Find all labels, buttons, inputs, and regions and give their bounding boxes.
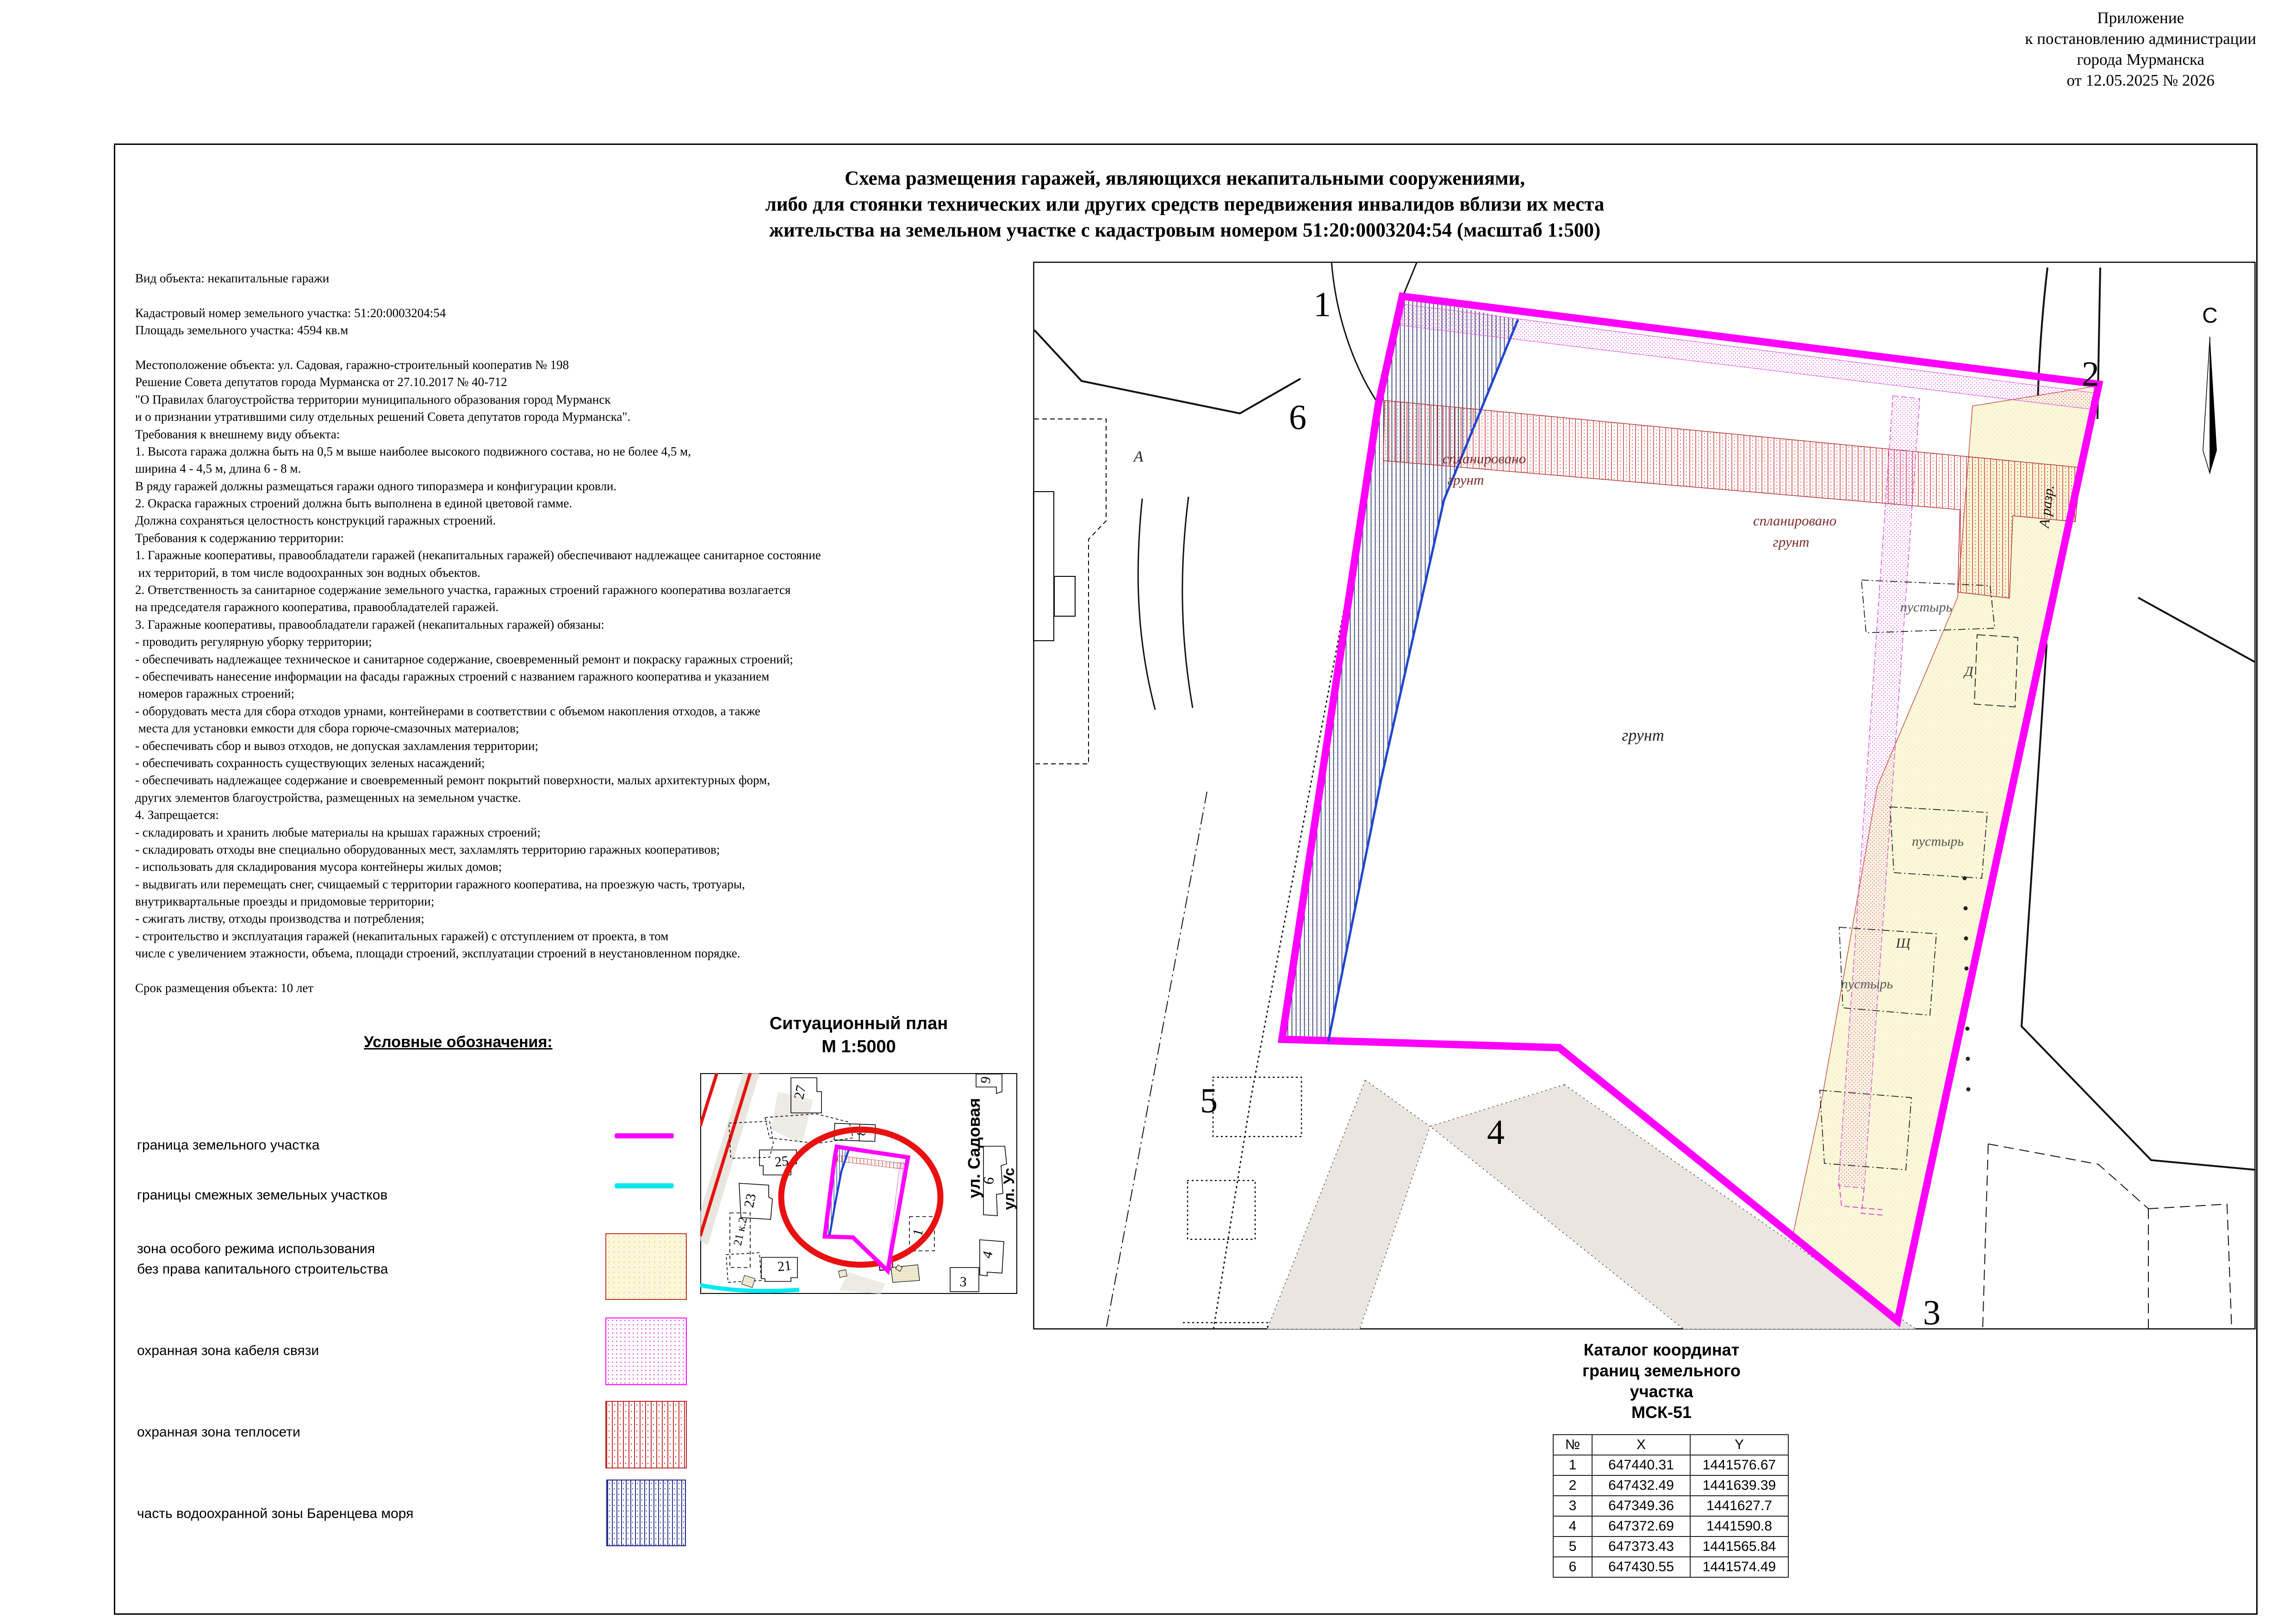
cell-n: 4: [1553, 1516, 1592, 1537]
point-label-6: 6: [1289, 398, 1307, 437]
info-line: 4. Запрещается:: [135, 808, 821, 825]
col-header-x: X: [1592, 1435, 1690, 1455]
cell-x: 647373.43: [1592, 1537, 1690, 1557]
cell-n: 3: [1553, 1496, 1592, 1516]
cell-n: 6: [1553, 1557, 1592, 1577]
title-line: либо для стоянки технических или других …: [116, 192, 2254, 218]
annex-line: от 12.05.2025 № 2026: [2025, 70, 2256, 91]
info-line: 1. Гаражные кооперативы, правообладатели…: [135, 548, 821, 565]
page-title: Схема размещения гаражей, являющихся нек…: [116, 166, 2254, 244]
info-line: - обеспечивать нанесение информации на ф…: [135, 669, 821, 687]
info-line: - обеспечивать надлежащее техническое и …: [135, 652, 821, 669]
info-line: Вид объекта: некапитальные гаражи: [135, 271, 821, 288]
cell-y: 1441639.39: [1690, 1475, 1788, 1496]
info-line: - сжигать листву, отходы производства и …: [135, 912, 821, 929]
info-line: номеров гаражных строений;: [135, 687, 821, 704]
cell-n: 2: [1553, 1475, 1592, 1496]
cell-x: 647430.55: [1592, 1557, 1690, 1577]
info-line: - проводить регулярную уборку территории…: [135, 635, 821, 652]
title-line: Схема размещения гаражей, являющихся нек…: [116, 166, 2254, 192]
legend-swatch-water-zone: [606, 1480, 686, 1546]
situational-plan-scale: М 1:5000: [700, 1035, 1017, 1058]
info-line: - складировать и хранить любые материалы…: [135, 825, 821, 843]
cell-y: 1441576.67: [1690, 1455, 1788, 1475]
cell-y: 1441627.7: [1690, 1496, 1788, 1516]
situational-plan-title-line: Ситуационный план: [700, 1012, 1017, 1035]
info-line: [135, 288, 821, 306]
legend-heading: Условные обозначения:: [338, 1033, 579, 1051]
info-line: - обеспечивать надлежащее содержание и с…: [135, 773, 821, 790]
cell-x: 647349.36: [1592, 1496, 1690, 1516]
north-label: С: [2202, 303, 2217, 327]
info-line: на председателя гаражного кооператива, п…: [135, 600, 821, 617]
cell-y: 1441574.49: [1690, 1557, 1788, 1577]
plan-street-us: ул. Ус: [1001, 1168, 1017, 1210]
annex-line: города Мурманска: [2025, 49, 2256, 70]
point-label-3: 3: [1923, 1293, 1941, 1330]
cell-n: 5: [1553, 1537, 1592, 1557]
info-line: 2. Ответственность за санитарное содержа…: [135, 583, 821, 600]
cell-x: 647440.31: [1592, 1455, 1690, 1475]
point-label-2: 2: [2082, 355, 2099, 394]
info-line: - строительство и эксплуатация гаражей (…: [135, 929, 821, 946]
info-line: их территорий, в том числе водоохранных …: [135, 566, 821, 583]
title-line: жительства на земельном участке с кадаст…: [116, 218, 2254, 244]
legend-swatch-adjacent: [615, 1183, 674, 1188]
legend-item-boundary: граница земельного участка: [137, 1135, 319, 1156]
info-line: других элементов благоустройства, размещ…: [135, 791, 821, 808]
info-line: [135, 964, 821, 981]
table-row: 1 647440.31 1441576.67: [1553, 1455, 1788, 1475]
point-label-1: 1: [1313, 285, 1331, 324]
legend-item-heat-zone: охранная зона теплосети: [137, 1422, 300, 1443]
col-header-n: №: [1553, 1435, 1592, 1455]
point-label-4: 4: [1487, 1113, 1505, 1152]
label-splanirovano-1-grunt: грунт: [1448, 472, 1484, 488]
coords-title-line: Каталог координат: [1546, 1339, 1777, 1360]
info-line: - обеспечивать сбор и вывоз отходов, не …: [135, 739, 821, 756]
legend-swatch-heat-zone: [605, 1401, 687, 1468]
main-map: 1 2 3 4 5 6 С А А разр. грунт спланирова…: [1033, 262, 2256, 1330]
cell-x: 647432.49: [1592, 1475, 1690, 1496]
info-line: - использовать для складирования мусора …: [135, 860, 821, 877]
info-line: Требования к содержанию территории:: [135, 531, 821, 548]
plan-street-sadovaya: ул. Садовая: [964, 1098, 983, 1198]
label-splanirovano-1: спланировано: [1443, 450, 1526, 467]
info-line: 1. Высота гаража должна быть на 0,5 м вы…: [135, 444, 821, 462]
plan-num-3: 3: [959, 1274, 967, 1290]
info-line: внутриквартальные проезды и придомовые т…: [135, 894, 821, 912]
info-line: и о признании утратившими силу отдельных…: [135, 410, 821, 427]
label-splanirovano-2-grunt: грунт: [1773, 534, 1810, 550]
label-pustyr-1: пустырь: [1900, 600, 1952, 615]
info-line: Срок размещения объекта: 10 лет: [135, 981, 821, 998]
cell-n: 1: [1553, 1455, 1592, 1475]
info-line: Решение Совета депутатов города Мурманск…: [135, 375, 821, 392]
annex-line: к постановлению администрации: [2025, 28, 2256, 49]
annex-line: Приложение: [2025, 7, 2256, 28]
info-line: [135, 341, 821, 358]
info-line: ширина 4 - 4,5 м, длина 6 - 8 м.: [135, 462, 821, 479]
label-a: А: [1133, 448, 1144, 465]
situational-plan-map: 27 25 23 21 к.2 21 8 9 6 1 3 4 ул. Садов…: [700, 1073, 1017, 1294]
legend-item-water-zone: часть водоохранной зоны Баренцева моря: [137, 1504, 413, 1524]
coords-title-line: МСК-51: [1546, 1402, 1777, 1423]
annex-block: Приложение к постановлению администрации…: [2025, 7, 2256, 91]
label-pustyr-2: пустырь: [1912, 834, 1964, 849]
info-line: Должна сохраняться целостность конструкц…: [135, 513, 821, 531]
legend-item-cable-zone: охранная зона кабеля связи: [137, 1341, 319, 1361]
info-line: 3. Гаражные кооперативы, правообладатели…: [135, 618, 821, 635]
situational-plan-title: Ситуационный план М 1:5000: [700, 1012, 1017, 1058]
document-page: Приложение к постановлению администрации…: [0, 0, 2296, 1624]
info-line: - обеспечивать сохранность существующих …: [135, 756, 821, 773]
legend-swatch-boundary: [615, 1133, 674, 1138]
table-row: 6 647430.55 1441574.49: [1553, 1557, 1788, 1577]
coords-title-line: участка: [1546, 1381, 1777, 1402]
plan-num-21: 21: [777, 1258, 792, 1274]
cell-y: 1441590.8: [1690, 1516, 1788, 1537]
legend-swatch-special-zone: [605, 1233, 687, 1300]
label-splanirovano-2: спланировано: [1753, 512, 1836, 529]
table-header-row: № X Y: [1553, 1435, 1788, 1455]
legend-item-special-zone: зона особого режима использования: [137, 1239, 375, 1259]
info-line: числе с увеличением этажности, объема, п…: [135, 946, 821, 963]
info-line: - выдвигать или перемещать снег, счищаем…: [135, 877, 821, 894]
info-line: Требования к внешнему виду объекта:: [135, 427, 821, 444]
legend-swatch-cable-zone: [605, 1318, 687, 1385]
table-row: 4 647372.69 1441590.8: [1553, 1516, 1788, 1537]
cell-y: 1441565.84: [1690, 1537, 1788, 1557]
coords-table: № X Y 1 647440.31 1441576.67 2 647432.49…: [1553, 1434, 1789, 1578]
legend-item-adjacent: границы смежных земельных участков: [137, 1185, 387, 1206]
info-line: - оборудовать места для сбора отходов ур…: [135, 704, 821, 721]
label-d: Д: [1963, 664, 1974, 679]
label-shch: Щ: [1895, 936, 1911, 951]
info-line: Площадь земельного участка: 4594 кв.м: [135, 323, 821, 340]
info-line: - складировать отходы вне специально обо…: [135, 843, 821, 860]
table-row: 2 647432.49 1441639.39: [1553, 1475, 1788, 1496]
coords-title-line: границ земельного: [1546, 1360, 1777, 1381]
table-row: 5 647373.43 1441565.84: [1553, 1537, 1788, 1557]
info-line: Местоположение объекта: ул. Садовая, гар…: [135, 358, 821, 375]
info-line: В ряду гаражей должны размещаться гаражи…: [135, 479, 821, 496]
info-line: 2. Окраска гаражных строений должна быть…: [135, 496, 821, 513]
table-row: 3 647349.36 1441627.7: [1553, 1496, 1788, 1516]
object-info-text: Вид объекта: некапитальные гаражи Кадаст…: [135, 271, 821, 998]
point-label-5: 5: [1200, 1081, 1218, 1120]
cell-x: 647372.69: [1592, 1516, 1690, 1537]
info-line: места для установки емкости для сбора го…: [135, 721, 821, 738]
legend-item-special-zone-2: без права капитального строительства: [137, 1259, 388, 1280]
col-header-y: Y: [1690, 1435, 1788, 1455]
coords-table-title: Каталог координат границ земельного учас…: [1546, 1339, 1777, 1423]
info-line: "О Правилах благоустройства территории м…: [135, 393, 821, 410]
info-line: Кадастровый номер земельного участка: 51…: [135, 306, 821, 323]
label-grunt: грунт: [1622, 726, 1664, 744]
label-pustyr-3: пустырь: [1841, 976, 1893, 992]
